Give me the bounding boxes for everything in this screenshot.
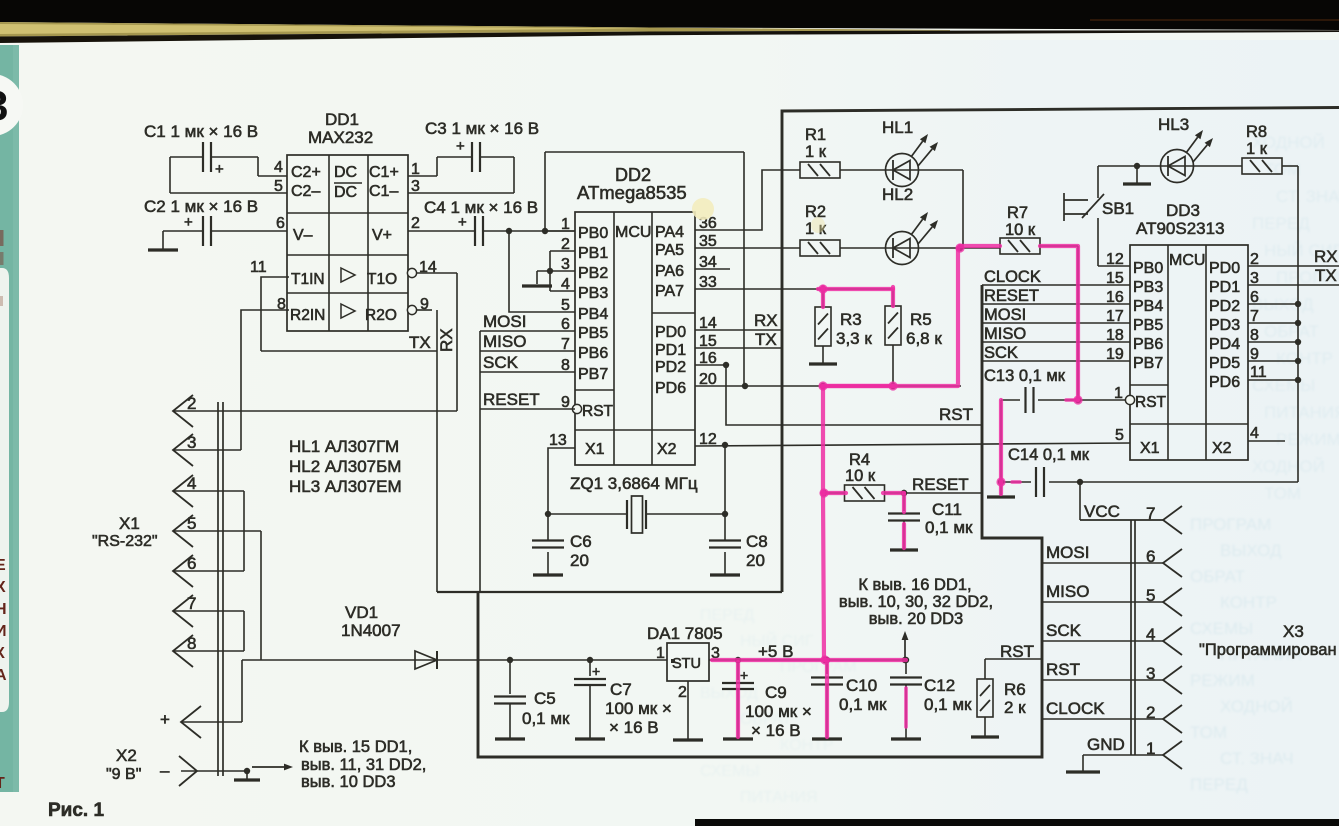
svg-text:PB7: PB7 [1133, 355, 1163, 372]
svg-text:Н: Н [0, 601, 7, 618]
svg-text:2: 2 [411, 215, 420, 232]
svg-text:PB4: PB4 [578, 306, 608, 323]
svg-text:–: – [160, 761, 170, 780]
svg-text:+: + [740, 667, 748, 683]
svg-text:ПИТАНИЯ: ПИТАНИЯ [1264, 403, 1339, 422]
svg-text:выв. 20 DD3: выв. 20 DD3 [869, 610, 964, 628]
svg-text:PB1: PB1 [578, 245, 608, 262]
svg-text:КОНТР: КОНТР [1220, 593, 1277, 612]
svg-text:RX: RX [437, 328, 456, 352]
svg-text:CLOCK: CLOCK [984, 268, 1041, 286]
svg-text:MAX232: MAX232 [308, 128, 373, 147]
svg-text:PA6: PA6 [655, 263, 684, 280]
svg-text:выв. 11, 31 DD2,: выв. 11, 31 DD2, [301, 756, 426, 774]
svg-text:R6: R6 [1004, 680, 1026, 699]
svg-text:PB5: PB5 [1133, 317, 1163, 334]
svg-text:18: 18 [1106, 327, 1124, 344]
svg-text:C6: C6 [570, 532, 592, 551]
svg-text:КОНТР: КОНТР [1276, 349, 1333, 368]
svg-text:HL3 АЛ307ЕМ: HL3 АЛ307ЕМ [289, 477, 402, 496]
svg-text:PB3: PB3 [578, 285, 608, 302]
svg-text:0,1 мк: 0,1 мк [924, 695, 972, 714]
svg-text:R8: R8 [1246, 123, 1267, 141]
svg-text:17: 17 [1106, 308, 1124, 325]
svg-text:SCK: SCK [483, 353, 519, 372]
svg-text:ATmega8535: ATmega8535 [577, 182, 687, 203]
svg-text:0,1 мк: 0,1 мк [839, 695, 887, 714]
svg-text:К выв. 15 DD1,: К выв. 15 DD1, [299, 738, 412, 756]
svg-text:1 к: 1 к [1246, 140, 1268, 158]
svg-text:"RS-232": "RS-232" [92, 533, 158, 550]
svg-text:PD2: PD2 [1209, 298, 1240, 315]
svg-text:PD3: PD3 [1209, 317, 1240, 334]
svg-text:15: 15 [1106, 270, 1124, 287]
svg-text:C7: C7 [610, 680, 632, 699]
svg-text:РЕЖИМ: РЕЖИМ [1190, 671, 1255, 690]
svg-text:PD0: PD0 [1209, 260, 1240, 277]
svg-text:CLOCK: CLOCK [1046, 699, 1105, 718]
svg-text:X1: X1 [1140, 440, 1160, 457]
svg-text:C2+: C2+ [291, 164, 321, 181]
svg-text:100 мк ×: 100 мк × [605, 699, 672, 718]
svg-text:А: А [0, 667, 7, 684]
svg-text:6: 6 [276, 215, 285, 232]
svg-text:2 к: 2 к [1004, 698, 1026, 717]
svg-text:DC: DC [334, 164, 357, 181]
svg-text:И: И [0, 623, 7, 640]
svg-text:R3: R3 [840, 310, 862, 329]
svg-text:19: 19 [1106, 346, 1124, 363]
svg-text:MCU: MCU [1169, 252, 1205, 269]
svg-text:выв. 10 DD3: выв. 10 DD3 [301, 773, 396, 791]
svg-text:PD5: PD5 [1209, 355, 1240, 372]
svg-text:"9 В": "9 В" [106, 766, 141, 783]
svg-text:PD2: PD2 [655, 359, 686, 376]
svg-text:0,1 мк: 0,1 мк [925, 518, 973, 537]
svg-text:ПЕРЕД: ПЕРЕД [1190, 775, 1248, 794]
svg-text:PB0: PB0 [578, 225, 608, 242]
svg-text:PB6: PB6 [578, 345, 608, 362]
svg-text:ТОМ: ТОМ [1264, 484, 1301, 503]
svg-text:GND: GND [1087, 735, 1125, 754]
svg-text:ZQ1 3,6864 МГц: ZQ1 3,6864 МГц [570, 474, 698, 493]
svg-text:DD3: DD3 [1166, 201, 1200, 220]
svg-text:R5: R5 [910, 310, 932, 329]
svg-text:20: 20 [746, 551, 765, 570]
svg-text:X2: X2 [657, 441, 677, 458]
svg-text:13: 13 [549, 432, 567, 449]
svg-text:ВЫХОД: ВЫХОД [1220, 541, 1282, 560]
svg-text:MCU: MCU [615, 224, 651, 241]
svg-text:MISO: MISO [1046, 582, 1089, 601]
svg-text:T1IN: T1IN [291, 271, 325, 288]
svg-text:Х: Х [0, 579, 6, 596]
svg-text:TX: TX [1315, 266, 1337, 285]
svg-text:PA7: PA7 [655, 283, 684, 300]
svg-text:C4 1 мк × 16 В: C4 1 мк × 16 В [424, 198, 538, 217]
svg-text:X2: X2 [1212, 440, 1232, 457]
svg-text:4: 4 [1250, 425, 1259, 442]
svg-text:ХОДНОЙ: ХОДНОЙ [1220, 697, 1293, 716]
svg-text:STU: STU [672, 656, 701, 672]
svg-text:PB0: PB0 [1133, 260, 1163, 277]
svg-text:RST: RST [939, 405, 973, 424]
svg-text:"Программирован: "Программирован [1199, 641, 1337, 659]
svg-text:V+: V+ [372, 227, 392, 244]
svg-text:AT90S2313: AT90S2313 [1136, 219, 1225, 238]
svg-text:RESET: RESET [483, 390, 540, 409]
svg-text:Т: Т [0, 775, 5, 792]
svg-text:RX: RX [1314, 247, 1338, 266]
svg-text:ПРОГРАМ: ПРОГРАМ [1190, 515, 1271, 534]
svg-text:ТОМ: ТОМ [1190, 723, 1227, 742]
svg-text:1: 1 [656, 645, 665, 662]
svg-text:2: 2 [678, 684, 687, 701]
svg-text:SCK: SCK [984, 344, 1018, 362]
svg-text:X2: X2 [116, 746, 137, 765]
svg-text:C2 1 мк × 16 В: C2 1 мк × 16 В [144, 197, 258, 216]
svg-text:RX: RX [754, 311, 778, 330]
svg-text:1N4007: 1N4007 [341, 621, 401, 640]
svg-text:VD1: VD1 [345, 603, 378, 622]
svg-text:4: 4 [187, 474, 196, 493]
svg-text:10 к: 10 к [1005, 221, 1036, 239]
svg-text:8: 8 [187, 634, 196, 653]
svg-text:HL1: HL1 [882, 118, 913, 137]
svg-text:6: 6 [187, 554, 196, 573]
svg-text:X1: X1 [585, 441, 605, 458]
svg-text:PA4: PA4 [655, 224, 684, 241]
svg-text:2: 2 [187, 394, 196, 413]
svg-text:+: + [592, 663, 600, 679]
svg-text:SB1: SB1 [1102, 199, 1134, 218]
svg-text:C3 1 мк × 16 В: C3 1 мк × 16 В [425, 119, 539, 138]
svg-text:DA1 7805: DA1 7805 [647, 624, 723, 643]
svg-text:PB4: PB4 [1133, 298, 1163, 315]
svg-text:HL1 АЛ307ГМ: HL1 АЛ307ГМ [289, 437, 399, 456]
svg-text:PB3: PB3 [1133, 279, 1163, 296]
svg-text:RST: RST [582, 403, 614, 420]
svg-text:R2O: R2O [365, 307, 397, 324]
svg-text:X1: X1 [119, 514, 140, 533]
svg-text:ПЕРЕД: ПЕРЕД [1252, 214, 1310, 233]
svg-text:TX: TX [755, 330, 777, 349]
svg-text:3: 3 [0, 82, 8, 129]
svg-text:RESET: RESET [912, 475, 969, 494]
svg-text:RST: RST [1046, 660, 1080, 679]
svg-text:PA5: PA5 [655, 242, 684, 259]
svg-text:C1 1 мк × 16 В: C1 1 мк × 16 В [144, 122, 258, 141]
svg-text:PD1: PD1 [1209, 279, 1240, 296]
svg-text:ПИТАНИЯ: ПИТАНИЯ [740, 789, 818, 806]
svg-text:TX: TX [409, 333, 431, 352]
svg-text:MISO: MISO [483, 332, 526, 351]
svg-text:HL2: HL2 [882, 185, 913, 204]
svg-text:C10: C10 [846, 676, 877, 695]
svg-text:+: + [160, 710, 170, 729]
svg-text:СХЕМЫ: СХЕМЫ [1190, 619, 1253, 638]
svg-text:Рис. 1: Рис. 1 [48, 800, 104, 821]
svg-text:DD1: DD1 [325, 110, 359, 129]
svg-text:PD6: PD6 [1209, 374, 1240, 391]
svg-text:6,8 к: 6,8 к [906, 329, 942, 348]
svg-text:R1: R1 [805, 126, 826, 144]
svg-text:5: 5 [1115, 427, 1124, 444]
svg-text:PB2: PB2 [578, 265, 608, 282]
svg-text:7: 7 [187, 594, 196, 613]
svg-text:PB5: PB5 [578, 325, 608, 342]
svg-text:PB7: PB7 [578, 366, 608, 383]
svg-text:MISO: MISO [984, 325, 1026, 343]
svg-text:C13 0,1 мк: C13 0,1 мк [984, 367, 1066, 385]
svg-text:выв. 10, 30, 32 DD2,: выв. 10, 30, 32 DD2, [839, 593, 993, 611]
svg-text:20: 20 [570, 551, 589, 570]
svg-text:1 к: 1 к [805, 143, 827, 161]
svg-text:C9: C9 [765, 683, 787, 702]
svg-text:T1O: T1O [367, 271, 397, 288]
svg-text:3: 3 [187, 433, 196, 452]
svg-text:ОБРАТ: ОБРАТ [1190, 567, 1245, 586]
svg-text:RST: RST [1000, 642, 1034, 661]
svg-text:X3: X3 [1283, 622, 1304, 641]
svg-text:× 16 В: × 16 В [609, 718, 659, 737]
svg-text:К: К [0, 645, 5, 662]
svg-text:К выв. 16 DD1,: К выв. 16 DD1, [858, 576, 971, 594]
svg-text:100 мк ×: 100 мк × [745, 702, 812, 721]
svg-text:R7: R7 [1007, 204, 1028, 222]
svg-text:SCK: SCK [1046, 621, 1082, 640]
svg-text:PD6: PD6 [655, 380, 686, 397]
svg-text:11: 11 [1250, 364, 1267, 381]
svg-text:VCC: VCC [1084, 502, 1120, 521]
svg-text:DC: DC [334, 184, 357, 201]
svg-text:PD1: PD1 [655, 342, 686, 359]
svg-text:RST: RST [1135, 394, 1167, 411]
svg-text:16: 16 [1106, 289, 1124, 306]
svg-text:+: + [184, 214, 193, 231]
svg-text:R2IN: R2IN [290, 307, 325, 324]
svg-text:V–: V– [293, 227, 313, 244]
svg-text:ХОДНОЙ: ХОДНОЙ [1252, 457, 1325, 476]
svg-text:RESET: RESET [984, 287, 1039, 305]
svg-text:3,3 к: 3,3 к [836, 329, 872, 348]
svg-text:C1+: C1+ [369, 164, 399, 181]
svg-text:10 к: 10 к [845, 467, 876, 485]
svg-text:+: + [456, 138, 465, 155]
svg-text:PB6: PB6 [1133, 336, 1163, 353]
svg-text:СТ. ЗНАЧ: СТ. ЗНАЧ [1220, 749, 1294, 768]
svg-text:СТ. ЗНАЧ: СТ. ЗНАЧ [1276, 187, 1339, 206]
svg-text:0,1 мк: 0,1 мк [522, 709, 570, 728]
svg-text:ВЫХОД: ВЫХОД [700, 685, 758, 702]
svg-text:+: + [215, 161, 224, 178]
svg-text:C14 0,1 мк: C14 0,1 мк [1008, 446, 1090, 464]
svg-text:4: 4 [274, 159, 283, 176]
svg-text:C8: C8 [746, 532, 768, 551]
svg-text:11: 11 [250, 259, 267, 276]
svg-text:C12: C12 [924, 676, 955, 695]
svg-text:C11: C11 [932, 500, 962, 519]
svg-text:MOSI: MOSI [483, 312, 526, 331]
svg-text:C5: C5 [534, 689, 556, 708]
svg-text:СХЕМЫ: СХЕМЫ [700, 763, 760, 780]
svg-text:C1–: C1– [369, 183, 398, 200]
svg-text:× 16 В: × 16 В [751, 721, 801, 740]
svg-text:5: 5 [187, 514, 196, 533]
svg-text:C2–: C2– [291, 183, 320, 200]
svg-text:MOSI: MOSI [984, 306, 1026, 324]
svg-text:HL3: HL3 [1158, 115, 1189, 134]
svg-text:PD4: PD4 [1209, 336, 1240, 353]
svg-text:РЕЖИМ: РЕЖИМ [1276, 430, 1339, 449]
svg-text:HL2 АЛ307БМ: HL2 АЛ307БМ [289, 457, 401, 476]
svg-text:ПЕРЕД: ПЕРЕД [700, 607, 755, 624]
svg-text:MOSI: MOSI [1046, 543, 1089, 562]
svg-text:ОБРАТ: ОБРАТ [1264, 322, 1319, 341]
svg-text:Е: Е [0, 557, 6, 574]
svg-text:PD0: PD0 [655, 324, 686, 341]
